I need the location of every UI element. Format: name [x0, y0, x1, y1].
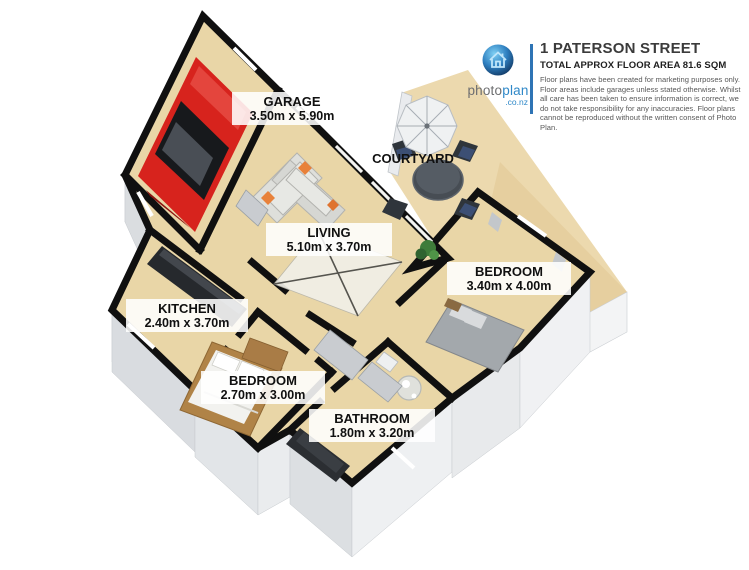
- svg-text:LIVING: LIVING: [307, 225, 350, 240]
- floorplan-page: GARAGE 3.50m x 5.90m COURTYARD LIVING 5.…: [0, 0, 749, 570]
- svg-text:BEDROOM: BEDROOM: [475, 264, 543, 279]
- label-garage: GARAGE 3.50m x 5.90m: [232, 92, 352, 125]
- svg-text:2.70m x 3.00m: 2.70m x 3.00m: [221, 388, 306, 402]
- logo-wordmark: photoplan: [462, 83, 534, 98]
- logo-sphere: [483, 45, 514, 76]
- disclaimer-text: Floor plans have been created for market…: [540, 75, 746, 132]
- patio-umbrella: [397, 96, 457, 156]
- svg-text:1.80m x 3.20m: 1.80m x 3.20m: [330, 426, 415, 440]
- photoplan-logo: photoplan .co.nz: [462, 40, 534, 107]
- svg-text:2.40m x 3.70m: 2.40m x 3.70m: [145, 316, 230, 330]
- photoplan-logo-icon: [478, 40, 518, 80]
- svg-text:3.50m x 5.90m: 3.50m x 5.90m: [250, 109, 335, 123]
- svg-text:3.40m x 4.00m: 3.40m x 4.00m: [467, 279, 552, 293]
- logo-domain: .co.nz: [462, 97, 534, 107]
- svg-text:KITCHEN: KITCHEN: [158, 301, 216, 316]
- page-title: 1 PATERSON STREET: [540, 40, 746, 57]
- svg-text:GARAGE: GARAGE: [263, 94, 320, 109]
- floor-area-subtitle: TOTAL APPROX FLOOR AREA 81.6 SQM: [540, 60, 746, 71]
- label-bedroom-second: BEDROOM 2.70m x 3.00m: [201, 371, 325, 404]
- label-bedroom-main: BEDROOM 3.40m x 4.00m: [447, 262, 571, 295]
- label-courtyard: COURTYARD: [372, 151, 454, 166]
- header-divider: [530, 44, 533, 114]
- label-kitchen: KITCHEN 2.40m x 3.70m: [126, 299, 248, 332]
- label-living: LIVING 5.10m x 3.70m: [266, 223, 392, 256]
- svg-text:BATHROOM: BATHROOM: [334, 411, 410, 426]
- label-bathroom: BATHROOM 1.80m x 3.20m: [309, 409, 435, 442]
- svg-text:COURTYARD: COURTYARD: [372, 151, 454, 166]
- svg-text:5.10m x 3.70m: 5.10m x 3.70m: [287, 240, 372, 254]
- svg-text:BEDROOM: BEDROOM: [229, 373, 297, 388]
